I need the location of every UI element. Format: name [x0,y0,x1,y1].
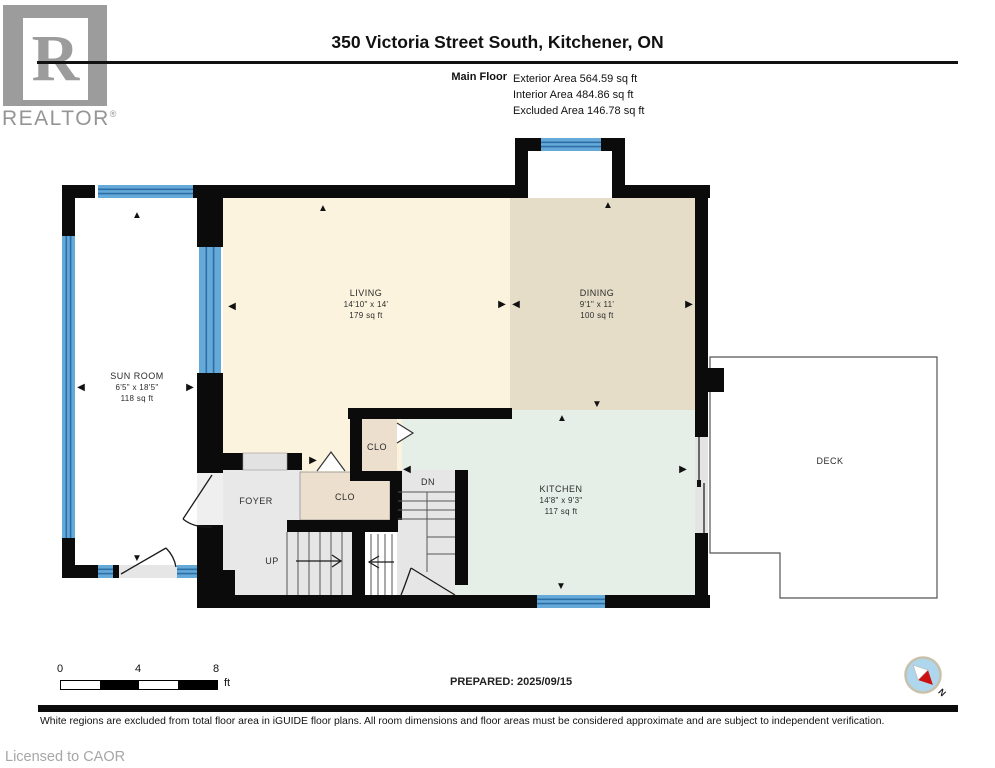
realtor-logo: R [3,5,107,106]
sunroom-dims: 6'5" x 18'5" [115,383,158,392]
excluded-area: Excluded Area 146.78 sq ft [513,103,644,119]
arrow-left-icon: ◀ [512,299,520,310]
bay-window-nook [528,151,612,198]
dining-dims: 9'1" x 11' [580,300,615,309]
scale-tick-8: 8 [206,663,226,675]
sliding-door-deck [695,437,708,533]
arrow-right-icon: ▶ [685,299,693,310]
window-sunroom-living [199,247,221,373]
arrow-up-icon: ▲ [557,413,567,424]
kitchen-dims: 14'8" x 9'3" [539,496,582,505]
arrow-down-icon: ▼ [556,581,566,592]
compass-north-label: N [936,687,948,699]
arrow-up-icon: ▲ [132,210,142,221]
window-sunroom-bottom-1 [98,565,113,578]
prepared-date: PREPARED: 2025/09/15 [450,676,572,688]
footer-rule [38,705,958,712]
stairs-up-label: UP [265,556,279,566]
arrow-up-icon: ▲ [603,200,613,211]
deck-outline [710,357,937,598]
stairs-down-label: DN [421,477,435,487]
living-name: LIVING [350,288,383,298]
arrow-right-icon: ▶ [309,455,317,466]
foyer-name: FOYER [239,496,273,506]
compass-icon: N [890,645,960,705]
area-summary: Exterior Area 564.59 sq ft Interior Area… [513,71,644,119]
door-gap-entry [119,565,177,578]
window-sunroom-left [62,236,75,538]
floor-plan: SUN ROOM 6'5" x 18'5" 118 sq ft LIVING 1… [0,130,995,620]
closet-upper-name: CLO [367,442,387,452]
sunroom-name: SUN ROOM [110,371,164,381]
arrow-left-icon: ◀ [403,464,411,475]
closet-lower-name: CLO [335,492,355,502]
disclaimer-text: White regions are excluded from total fl… [40,716,970,727]
arrow-right-icon: ▶ [498,299,506,310]
kitchen-area: 117 sq ft [545,507,578,516]
realtor-logo-r: R [23,18,88,100]
opening-living-foyer [243,453,287,470]
dining-name: DINING [580,288,615,298]
interior-area: Interior Area 484.86 sq ft [513,87,644,103]
arrow-down-icon: ▼ [132,553,142,564]
room-sunroom [75,198,197,565]
arrow-right-icon: ▶ [186,382,194,393]
window-sunroom-top [98,185,193,198]
deck-name: DECK [816,456,843,466]
window-sunroom-bottom-2 [177,565,197,578]
window-kitchen [537,595,605,608]
scale-unit: ft [224,677,230,689]
arrow-down-icon: ▼ [592,399,602,410]
arrow-up-icon: ▲ [318,203,328,214]
floor-label: Main Floor [300,71,507,83]
scale-tick-0: 0 [50,663,70,675]
arrow-left-icon: ◀ [228,301,236,312]
sunroom-area: 118 sq ft [121,394,154,403]
kitchen-name: KITCHEN [539,484,582,494]
floor-plan-page: R REALTOR® 350 Victoria Street South, Ki… [0,0,995,768]
header-rule [37,61,958,64]
page-title: 350 Victoria Street South, Kitchener, ON [0,32,995,53]
living-dims: 14'10" x 14' [344,300,389,309]
arrow-right-icon: ▶ [679,464,687,475]
scale-bar [60,680,218,690]
arrow-left-icon: ◀ [77,382,85,393]
door-gap-foyer-sunroom [197,473,223,525]
exterior-area: Exterior Area 564.59 sq ft [513,71,644,87]
license-text: Licensed to CAOR [5,749,125,765]
stairs-down-arrow [369,556,394,568]
stairs-down-area [397,470,455,595]
living-area: 179 sq ft [349,311,383,320]
scale-tick-4: 4 [128,663,148,675]
dining-area: 100 sq ft [580,311,614,320]
window-bay [541,138,601,151]
realtor-wordmark: REALTOR® [2,107,118,131]
